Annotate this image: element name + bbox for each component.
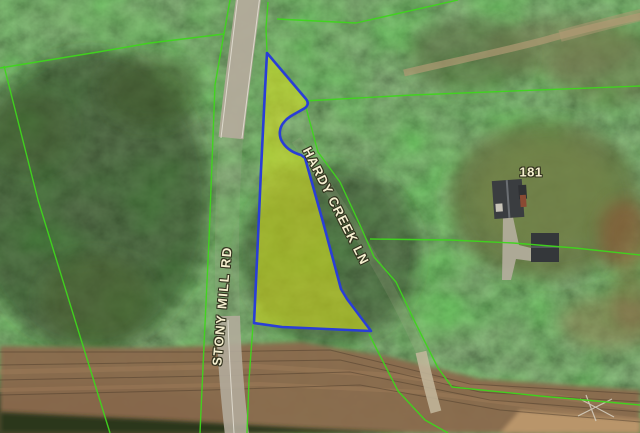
garage xyxy=(531,233,559,262)
map-canvas xyxy=(0,0,640,433)
satellite-map: STONY MILL RD HARDY CREEK LN 181 xyxy=(0,0,640,433)
house-number-label: 181 xyxy=(519,165,542,180)
